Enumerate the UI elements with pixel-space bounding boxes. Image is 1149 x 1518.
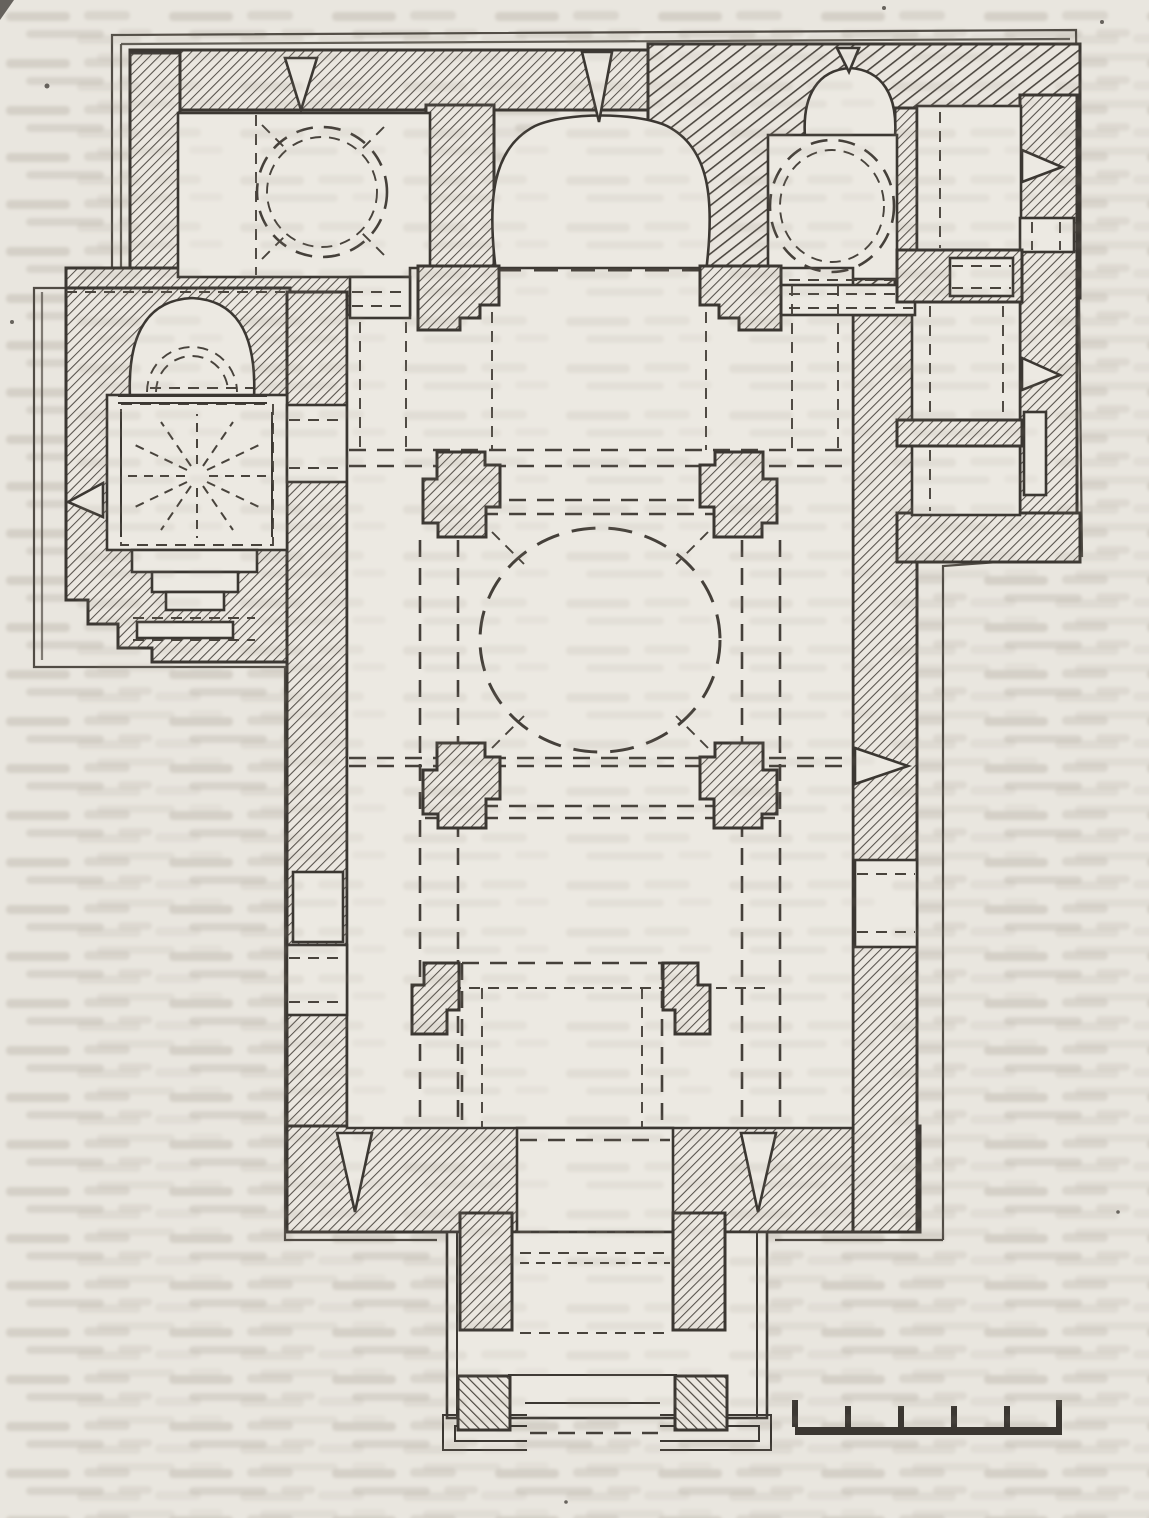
floor-plan-figure — [0, 0, 1149, 1518]
bleedthrough-texture-over — [71, 23, 1149, 1518]
scanned-page — [0, 0, 1149, 1518]
